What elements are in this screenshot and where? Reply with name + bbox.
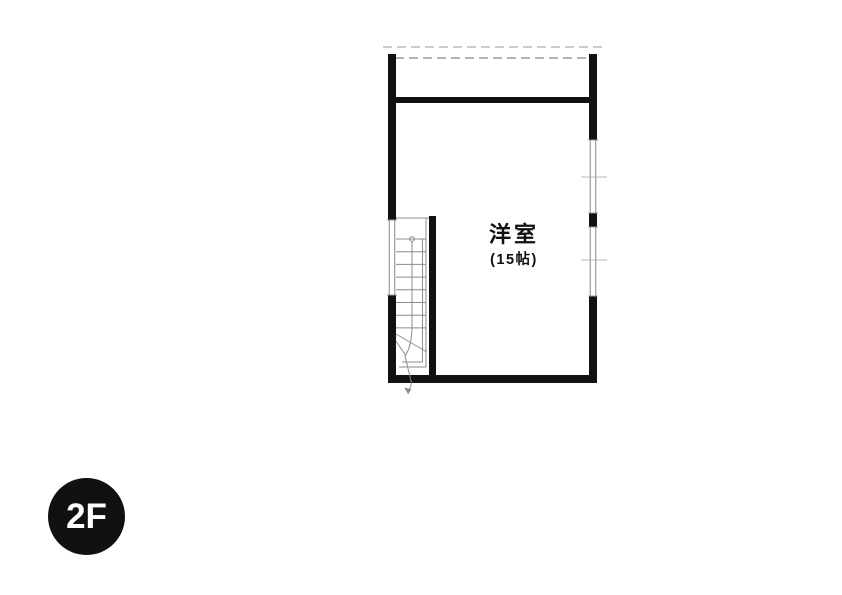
- wall-left-upper: [388, 54, 396, 220]
- wall-right-lower: [589, 296, 597, 383]
- floor-plan-drawing: [0, 0, 842, 595]
- window-left: [387, 220, 397, 295]
- floor-badge-label: 2F: [66, 497, 107, 537]
- window-right-upper: [581, 140, 607, 213]
- balcony-dashed-outline: [383, 47, 602, 58]
- wall-top-horizontal: [388, 97, 597, 103]
- floor-plan-page: 洋室 (15帖) 2F: [0, 0, 842, 595]
- floor-badge: 2F: [48, 478, 125, 555]
- room-size: (15帖): [434, 253, 594, 268]
- wall-left-lower: [388, 295, 396, 383]
- room-name: 洋室: [434, 224, 594, 246]
- room-label: 洋室 (15帖): [434, 224, 594, 268]
- wall-bottom: [388, 375, 597, 383]
- stair-winder-tread: [396, 341, 406, 356]
- stair-arrowhead: [404, 388, 411, 395]
- staircase: [396, 218, 429, 394]
